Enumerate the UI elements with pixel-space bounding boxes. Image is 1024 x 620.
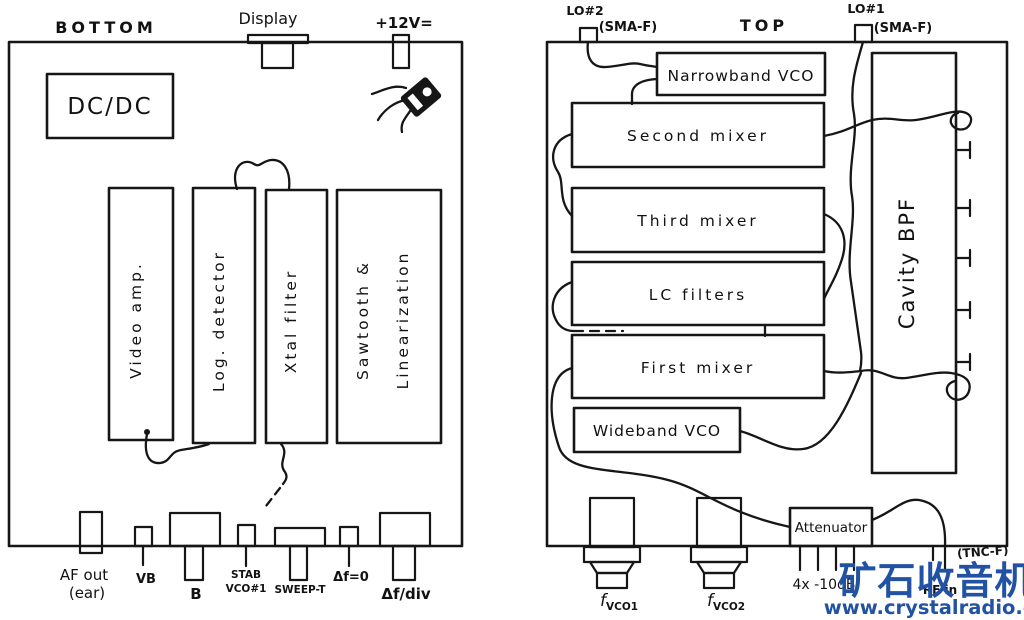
block-narrowband-vco-label: Narrowband VCO	[668, 67, 815, 85]
connector-lo1	[855, 25, 872, 42]
block-cavity-bpf-label: Cavity BPF	[895, 197, 919, 329]
wire-first-to-cavity	[824, 370, 970, 400]
wire-lo1-down	[850, 42, 863, 371]
block-xtal-filter-label: Xtal filter	[282, 269, 300, 373]
label-vb: VB	[136, 572, 156, 587]
watermark-url: www.crystalradio.cn	[824, 596, 1024, 619]
block-video-amp-label: Video amp.	[127, 261, 145, 379]
block-lc-filters-label: LC filters	[649, 286, 748, 304]
wire-video-to-log	[146, 434, 209, 463]
power-12v-connector	[393, 35, 409, 68]
block-attenuator-label: Attenuator	[795, 520, 868, 536]
wire-wideband-to-junction	[740, 373, 861, 449]
wire-lo2-to-nbvco	[588, 42, 657, 67]
block-third-mixer-label: Third mixer	[636, 212, 758, 230]
block-dcdc-label: DC/DC	[67, 94, 152, 120]
tuning-screw-icon	[956, 200, 970, 216]
wire-nbvco-to-second	[632, 79, 657, 104]
wire-second-to-cavity	[824, 112, 971, 136]
plug-wire-1	[372, 87, 406, 94]
power-plug-icon	[400, 76, 443, 118]
connector-df-div	[380, 513, 430, 546]
block-sawtooth-label-2: Linearization	[394, 251, 412, 390]
plug-wire-2	[378, 100, 406, 120]
top-view-panel: TOP LO#2 (SMA-F) LO#1 (SMA-F) Narrowband…	[547, 1, 1009, 613]
label-sweep: SWEEP-T	[275, 584, 327, 596]
scanned-diagram-page: BOTTOM Display +12V= DC/DC Video amp. Lo…	[0, 0, 1024, 620]
connector-sweep	[275, 528, 325, 546]
block-second-mixer-label: Second mixer	[627, 127, 769, 145]
label-af-out: AF out	[60, 566, 108, 584]
label-af-out-ear: (ear)	[69, 584, 105, 602]
connector-vb	[135, 527, 152, 546]
label-fvco2: fVCO2	[707, 591, 745, 613]
connector-df-zero	[340, 527, 358, 546]
wire-second-to-third-left	[553, 134, 572, 216]
connector-stab	[238, 525, 255, 546]
block-wideband-vco-label: Wideband VCO	[593, 422, 721, 440]
display-connector-body	[262, 43, 293, 68]
label-fvco1: fVCO1	[600, 591, 638, 613]
label-stab-1: STAB	[231, 569, 261, 581]
label-b: B	[190, 585, 201, 603]
watermark: 矿石收音机 www.crystalradio.cn	[824, 559, 1024, 619]
label-lo1-conn: (SMA-F)	[874, 21, 933, 36]
plug-wire-3	[402, 108, 412, 132]
wire-third-to-lc-right	[824, 214, 844, 299]
wire-xtal-down-dashed	[266, 488, 280, 506]
block-first-mixer-label: First mixer	[641, 359, 756, 377]
power-12v-label: +12V=	[375, 14, 433, 32]
connector-lo2	[580, 28, 597, 42]
block-sawtooth	[337, 190, 441, 443]
tuning-screw-icon	[956, 250, 970, 266]
tuning-screw-icon	[956, 354, 970, 370]
top-view-title: TOP	[740, 16, 788, 35]
diagram-canvas: BOTTOM Display +12V= DC/DC Video amp. Lo…	[0, 0, 1024, 620]
connector-b-pin	[185, 546, 203, 580]
label-lo2: LO#2	[566, 3, 603, 18]
wire-log-to-xtal-top	[235, 160, 289, 189]
wire-attenuator-to-rf	[872, 500, 945, 546]
connector-b	[170, 513, 220, 546]
block-sawtooth-label-1: Sawtooth &	[354, 260, 372, 380]
block-log-detector-label: Log. detector	[210, 250, 228, 392]
tuning-screw-icon	[956, 302, 970, 318]
connector-df-div-pin	[393, 546, 415, 580]
bottom-view-title: BOTTOM	[55, 18, 157, 37]
label-lo2-conn: (SMA-F)	[599, 20, 658, 35]
tuning-screw-icon	[956, 142, 970, 158]
label-df-zero: Δf=0	[333, 570, 369, 585]
connector-fvco1	[584, 498, 640, 588]
label-stab-2: VCO#1	[226, 583, 267, 595]
label-lo1: LO#1	[847, 1, 884, 16]
display-label: Display	[239, 9, 298, 28]
bottom-view-panel: BOTTOM Display +12V= DC/DC Video amp. Lo…	[9, 9, 462, 603]
tuning-screw-icons	[956, 142, 970, 370]
wire-first-to-attenuator	[552, 368, 790, 527]
connector-sweep-pin	[290, 546, 307, 580]
wire-xtal-down	[281, 444, 286, 484]
label-df-div: Δf/div	[381, 585, 430, 603]
